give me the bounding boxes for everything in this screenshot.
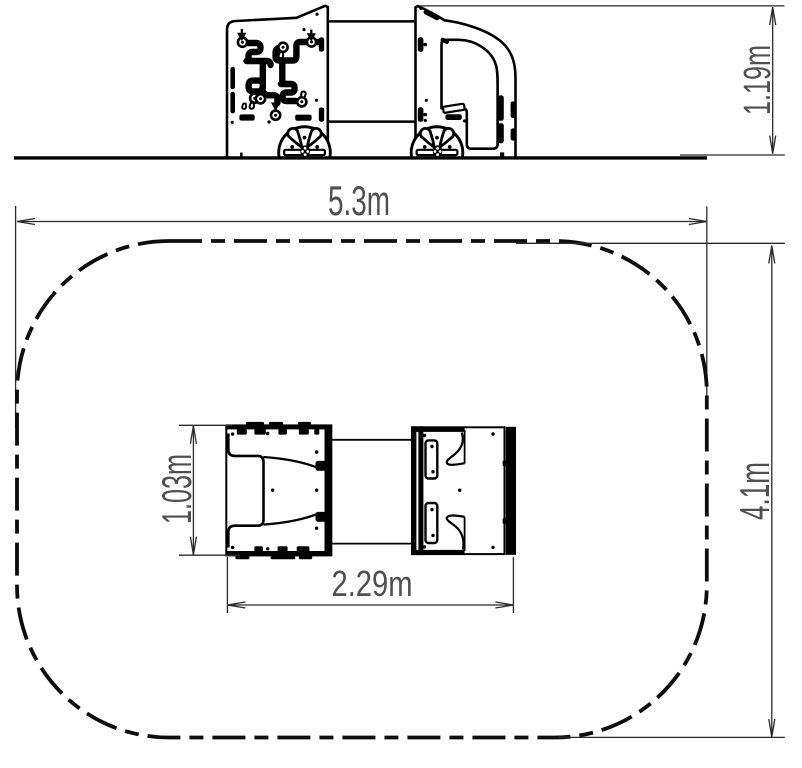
svg-text:1.19m: 1.19m bbox=[737, 45, 779, 115]
svg-text:2.29m: 2.29m bbox=[332, 563, 413, 604]
svg-text:4.1m: 4.1m bbox=[731, 462, 778, 520]
svg-text:5.3m: 5.3m bbox=[328, 177, 390, 224]
svg-text:1.03m: 1.03m bbox=[153, 454, 200, 524]
